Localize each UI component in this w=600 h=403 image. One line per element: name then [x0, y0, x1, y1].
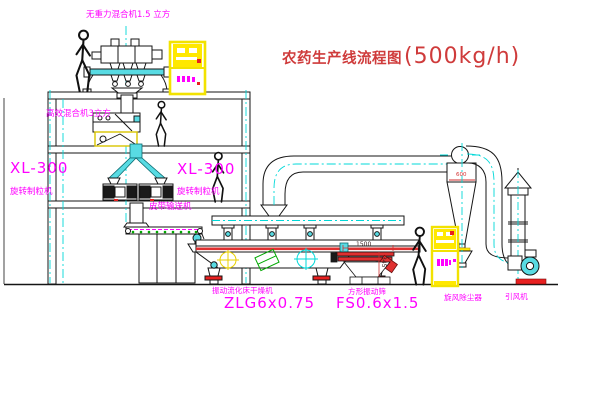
control-cabinet-2 [432, 227, 458, 286]
label-fan: 引风机 [505, 293, 528, 301]
label-high-efficiency-mixer: 高效混合机3立方 [46, 110, 111, 119]
diagram-title: 农药生产线流程图 (500kg/h) [282, 44, 520, 69]
dimension-screen-height: 345 [380, 256, 386, 267]
label-cyclone: 旋风除尘器 [444, 294, 482, 302]
label-granulator-model-mid: XL-300 [177, 162, 235, 177]
flow-diagram-canvas: 农药生产线流程图 (500kg/h) 无重力混合机1.5 立方 高效混合机3立方… [0, 0, 600, 403]
belt-conveyor [126, 227, 203, 234]
label-dryer-model: ZLG6x0.75 [224, 296, 315, 311]
person-top-floor [76, 31, 89, 92]
control-cabinet-1 [170, 42, 205, 94]
granulator-right [139, 178, 173, 201]
title-text: 农药生产线流程图 [282, 47, 402, 68]
fluid-bed-dryer [188, 216, 420, 284]
label-granulator-model-left: XL-300 [10, 161, 68, 176]
title-capacity: (500kg/h) [404, 44, 520, 69]
label-granulator-name-left: 旋转制粒机 [10, 188, 53, 197]
dimension-screen-length: 1500 [356, 242, 371, 248]
label-belt-conveyor: 皮带输送机 [149, 203, 192, 212]
label-granulator-name-mid: 旋转制粒机 [177, 188, 220, 197]
induced-draft-fan [508, 250, 546, 284]
exhaust-duct [261, 156, 455, 216]
person-second-floor [156, 101, 166, 146]
label-gravity-free-mixer: 无重力混合机1.5 立方 [86, 11, 170, 20]
gravity-free-mixer [83, 39, 171, 114]
label-screen-model: FS0.6x1.5 [336, 296, 419, 311]
person-ground [413, 228, 426, 285]
granulator-left [103, 178, 137, 201]
dimension-cyclone: 600 [456, 173, 467, 179]
